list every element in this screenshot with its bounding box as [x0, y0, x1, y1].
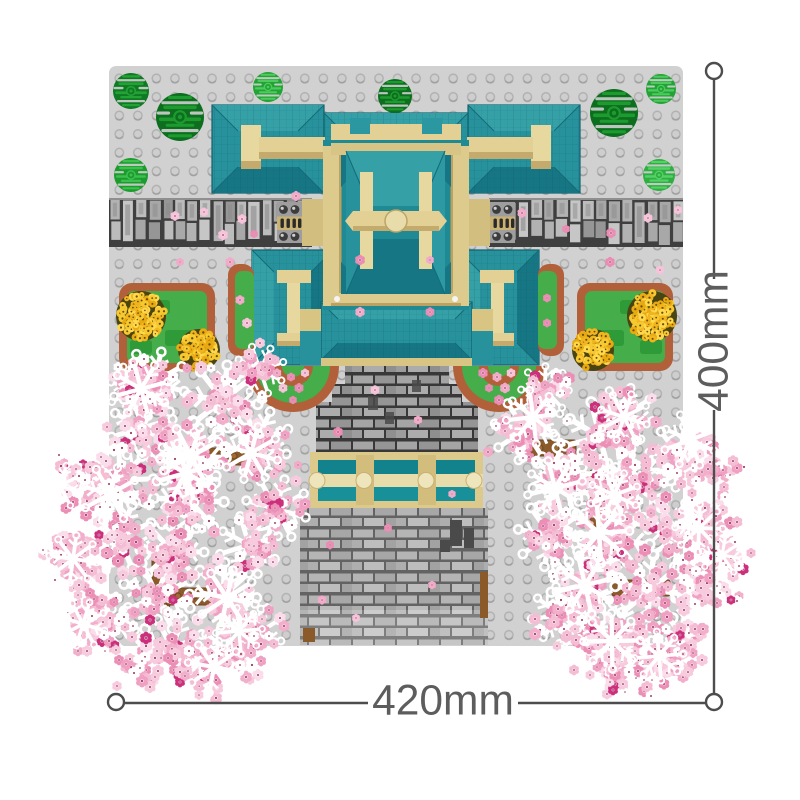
- svg-text:420mm: 420mm: [372, 678, 514, 725]
- svg-text:400mm: 400mm: [691, 270, 738, 412]
